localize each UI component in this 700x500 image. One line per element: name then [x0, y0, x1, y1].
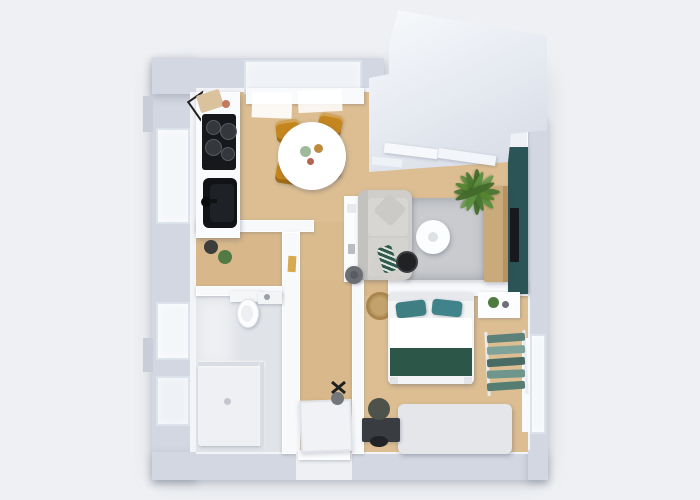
- bathroom-window-light: [198, 300, 232, 364]
- curtain-right: [297, 89, 342, 113]
- bathroom-window-upper: [156, 302, 190, 360]
- closet-wall-art: [288, 256, 297, 272]
- entrance-mat: [299, 399, 353, 453]
- burner-2: [220, 123, 237, 140]
- bed-headboard: [388, 292, 474, 301]
- table-plate-green: [300, 146, 311, 157]
- sink-basin: [210, 184, 234, 222]
- bed-duvet: [390, 318, 472, 352]
- kitchen-plant-pot: [204, 240, 218, 254]
- burner-4: [221, 147, 235, 161]
- bed-blanket: [390, 348, 472, 376]
- shower-glass-top: [198, 362, 264, 366]
- counter-item-red: [222, 100, 230, 108]
- burner-1: [206, 120, 221, 135]
- shower-drain: [224, 398, 231, 405]
- bedroom-window: [530, 334, 546, 434]
- table-plate-orange: [314, 144, 323, 153]
- nightstand-plant: [488, 297, 499, 308]
- sink-spout: [209, 199, 217, 203]
- bed-foot-right: [464, 377, 472, 384]
- shower-tray: [198, 364, 262, 446]
- shower-glass-side: [260, 362, 264, 446]
- sofa-backrest: [358, 190, 368, 280]
- kitchen-window: [156, 128, 190, 224]
- console-item-1: [347, 204, 356, 213]
- table-plate-red: [307, 158, 314, 165]
- cabinet-item: [264, 294, 270, 300]
- bedroom-bench: [398, 404, 512, 454]
- bedroom-stool: [370, 436, 388, 447]
- dining-table: [278, 122, 346, 190]
- left-wall-step-upper: [143, 96, 153, 132]
- side-table-top: [350, 271, 358, 279]
- coat-bag: [331, 392, 344, 405]
- bed-foot-left: [390, 377, 398, 384]
- bed-pillow-2: [431, 298, 463, 317]
- burner-3: [205, 139, 222, 156]
- tv: [510, 208, 519, 262]
- dresser-plant: [368, 398, 390, 420]
- curtain-left: [252, 91, 293, 118]
- nightstand-item: [502, 301, 509, 308]
- coffee-table-decor: [428, 232, 438, 242]
- left-wall-step-lower: [143, 338, 153, 372]
- bathroom-cabinet: [258, 292, 282, 304]
- floor-plan: [0, 0, 700, 500]
- sideboard-edge: [503, 186, 508, 282]
- console-item-2: [348, 244, 355, 254]
- kitchen-plant: [218, 250, 232, 264]
- towel-4: [487, 369, 525, 378]
- nightstand: [478, 292, 520, 318]
- sofa-tray: [396, 251, 418, 273]
- toilet-seat: [241, 305, 253, 322]
- bathroom-window-lower: [156, 376, 190, 426]
